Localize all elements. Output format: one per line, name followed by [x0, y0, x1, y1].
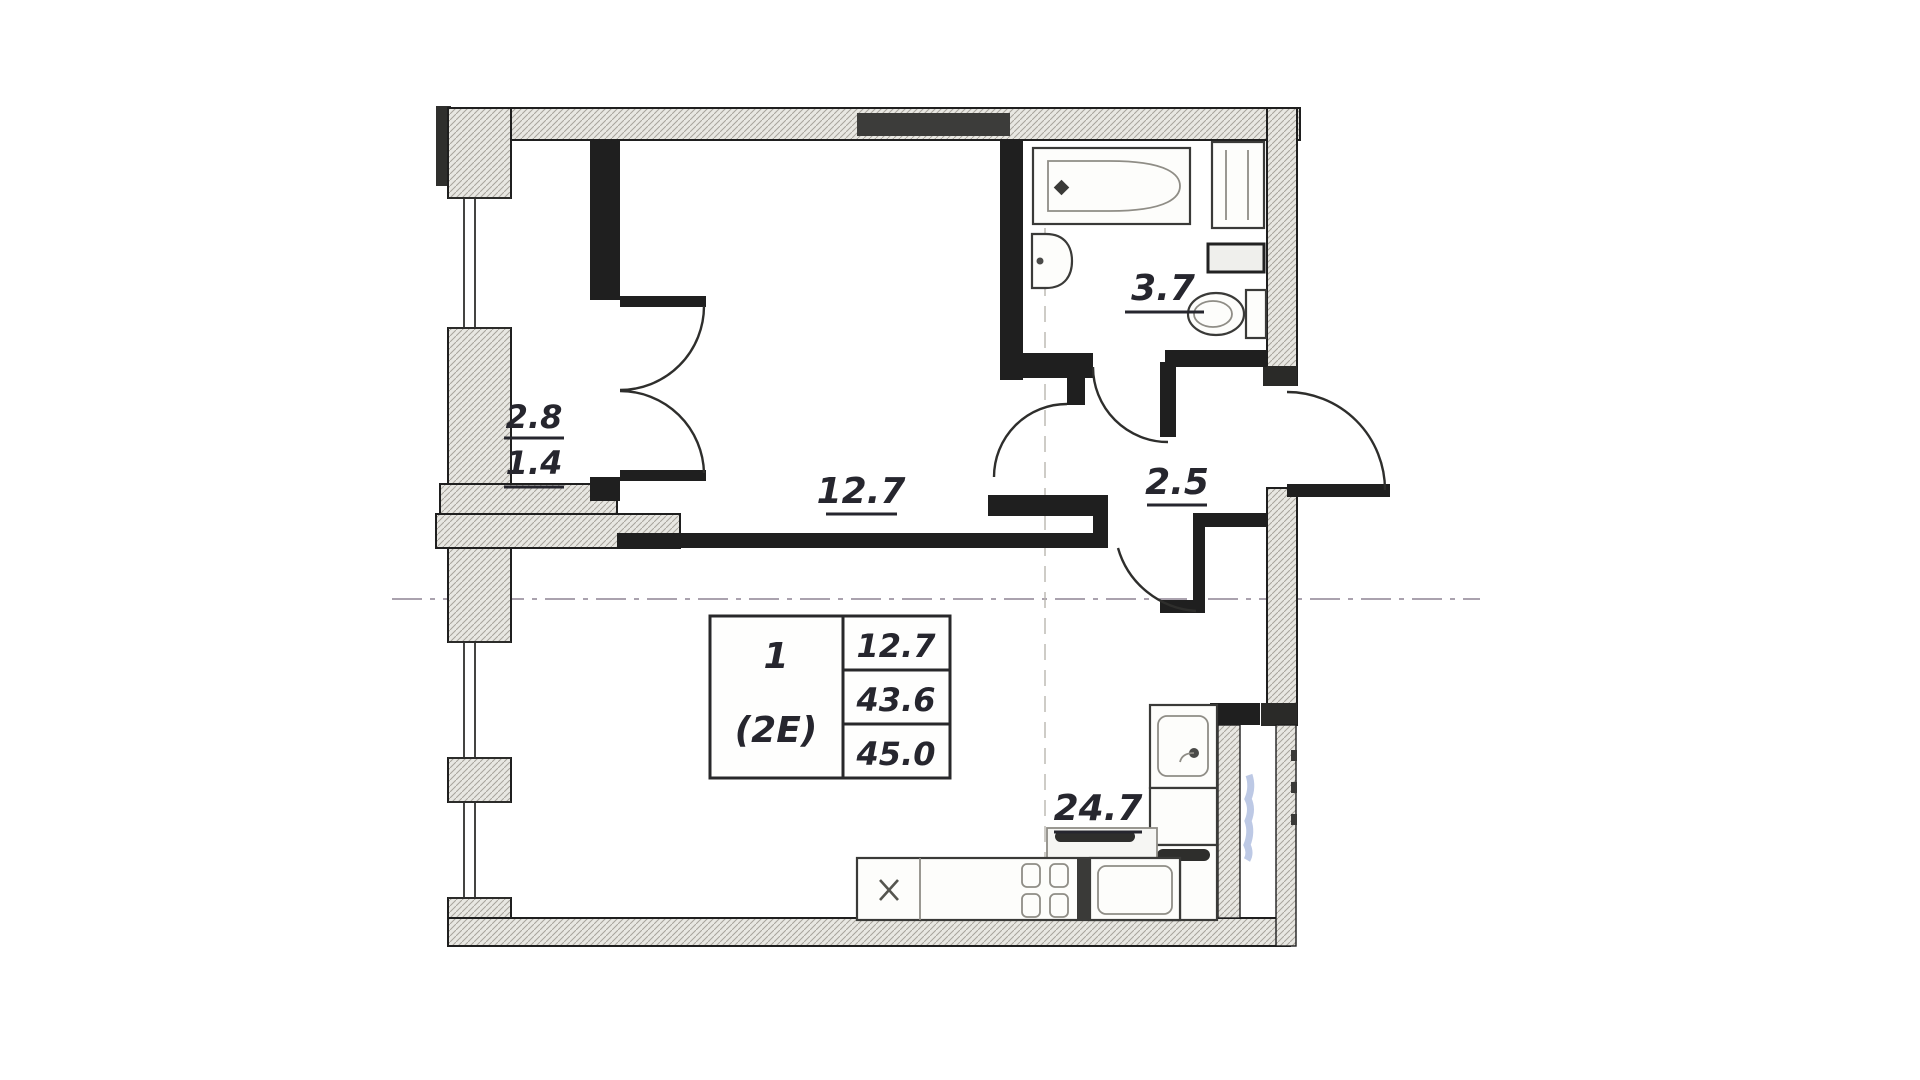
- entry-door: [1287, 392, 1390, 497]
- left-wall-pier: [448, 108, 511, 198]
- door-leaf: [1287, 484, 1390, 497]
- floor-plan-svg: 2.8 1.4 12.7 3.7 2.5 24.7 1 (2E) 12.7: [0, 0, 1920, 1080]
- loggia-partition-upper: [590, 140, 620, 300]
- loggia-double-door: [620, 296, 706, 481]
- living-window-1: [448, 642, 511, 758]
- hall-south-wall: [988, 495, 1093, 516]
- door-swing-icon: [1093, 367, 1168, 442]
- bathroom-door: [1093, 362, 1176, 442]
- loggia-label: 2.8 1.4: [504, 398, 564, 487]
- washing-machine-icon: [1212, 142, 1264, 228]
- main-room-label: 12.7: [817, 471, 906, 514]
- counter-divider: [1077, 858, 1090, 920]
- tick-mark: [1291, 782, 1297, 793]
- door-leaf: [620, 470, 706, 481]
- floor-plan-page: 2.8 1.4 12.7 3.7 2.5 24.7 1 (2E) 12.7: [0, 0, 1920, 1080]
- loggia-partition-lower: [590, 477, 620, 501]
- hall-door-stub: [1067, 378, 1085, 405]
- left-wall-pier: [448, 548, 511, 642]
- left-wall-pier: [448, 758, 511, 802]
- refrigerator-icon: [1090, 858, 1180, 920]
- loggia-area-reduced: 1.4: [506, 444, 563, 482]
- door-swing-icon: [994, 404, 1067, 477]
- stamp-value-area: 43.6: [856, 681, 936, 719]
- door-swing-icon: [620, 306, 704, 390]
- kitchen-counter-row: [857, 858, 1180, 920]
- stamp-value-living: 12.7: [857, 627, 937, 665]
- washbasin-icon: [1032, 234, 1072, 288]
- living-kitchen-label: 24.7: [1054, 788, 1143, 832]
- loggia-window: [448, 198, 511, 328]
- bathroom-bottom-wall-left: [1000, 353, 1093, 378]
- loggia-area-full: 2.8: [506, 398, 563, 436]
- bathroom-bottom-wall-right: [1165, 350, 1267, 367]
- tick-mark: [1291, 814, 1297, 825]
- living-kitchen-area: 24.7: [1054, 788, 1143, 829]
- door-leaf: [620, 296, 706, 307]
- top-wall-lintel: [857, 113, 1010, 136]
- hall-wall-jamb: [1093, 495, 1108, 548]
- door-leaf: [1160, 362, 1176, 437]
- apartment-number: 1: [763, 636, 788, 677]
- niche-top-wall: [1193, 513, 1267, 527]
- niche-door: [1118, 548, 1205, 613]
- right-wall-upper: [1267, 108, 1297, 385]
- bathroom-left-wall: [1000, 140, 1023, 380]
- main-room-area: 12.7: [817, 471, 906, 512]
- stamp-value-total: 45.0: [856, 735, 936, 773]
- hallway-area: 2.5: [1145, 462, 1209, 503]
- room-living-wall: [617, 533, 1108, 548]
- door-swing-icon: [1287, 392, 1385, 490]
- door-leaf: [1160, 600, 1205, 613]
- apartment-stamp: 1 (2E) 12.7 43.6 45.0: [710, 616, 950, 778]
- right-wall-cap: [1261, 703, 1297, 726]
- bathroom-label: 3.7: [1125, 268, 1204, 312]
- kitchen-counter-icon: [1150, 788, 1217, 845]
- niche-shaft-wall: [1218, 725, 1240, 918]
- kitchen-sink-icon: [1150, 705, 1217, 788]
- storage-box-icon: [1208, 244, 1264, 272]
- apartment-type: (2E): [735, 710, 818, 751]
- bathtub-icon: [1033, 148, 1190, 224]
- right-wall-mid: [1267, 488, 1297, 725]
- tick-mark: [1291, 750, 1297, 761]
- left-wall-pier: [448, 328, 511, 486]
- niche-left-wall: [1193, 527, 1205, 600]
- illegible-blue-note-icon: [1247, 775, 1251, 860]
- entry-jamb: [1263, 366, 1297, 386]
- hall-room-door: [994, 404, 1067, 477]
- bathroom-area: 3.7: [1131, 268, 1195, 309]
- bottom-wall: [448, 918, 1290, 946]
- toilet-icon: [1188, 290, 1266, 338]
- door-swing-icon: [620, 391, 704, 473]
- living-window-2: [448, 802, 511, 898]
- hallway-label: 2.5: [1145, 462, 1209, 505]
